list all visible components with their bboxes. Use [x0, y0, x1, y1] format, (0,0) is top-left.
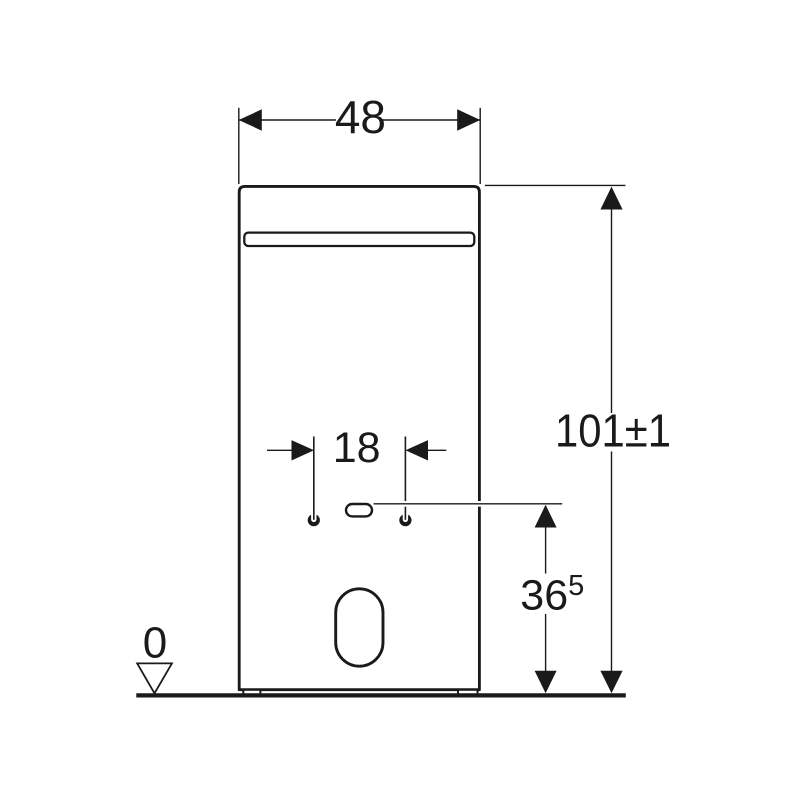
svg-text:48: 48	[335, 91, 386, 143]
svg-text:101±1: 101±1	[555, 405, 671, 457]
svg-text:18: 18	[333, 424, 381, 472]
svg-text:0: 0	[143, 618, 167, 667]
